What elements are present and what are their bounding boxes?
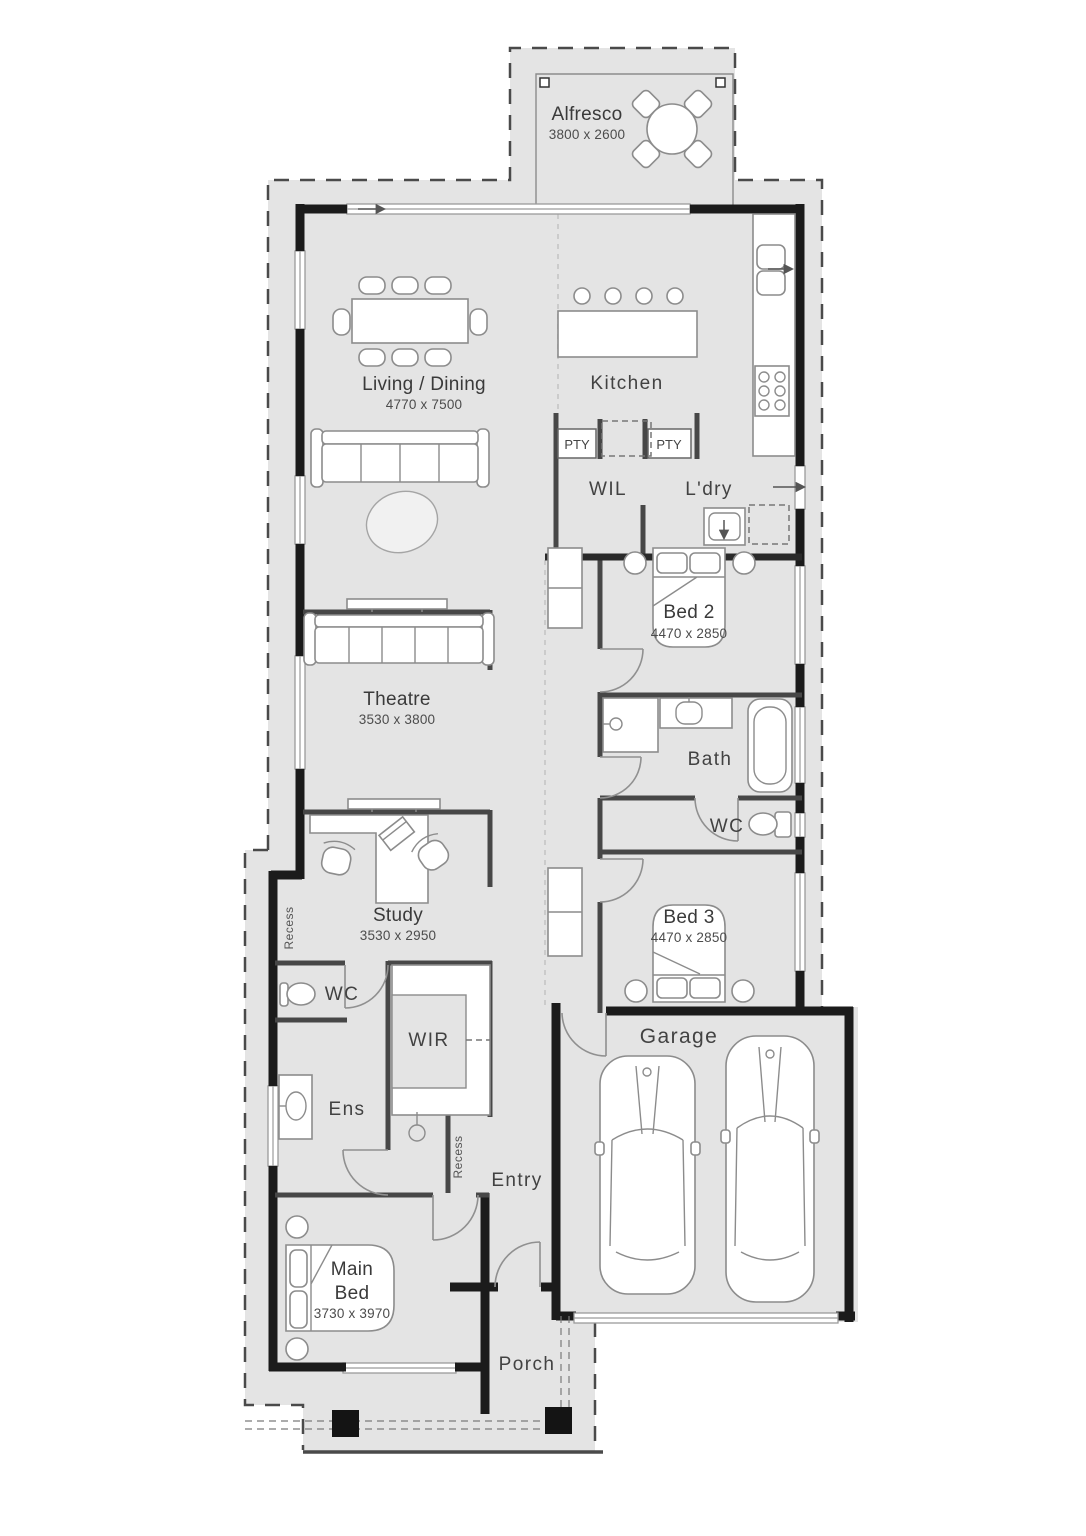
room-label-wil: WIL [589, 479, 627, 500]
room-label-main-bed-2: Bed [335, 1283, 370, 1304]
room-dims-study: 3530 x 2950 [360, 928, 437, 943]
room-label-living-dining: Living / Dining [362, 374, 486, 395]
room-label-kitchen: Kitchen [590, 373, 663, 394]
stool [636, 288, 652, 304]
room-label-bed3: Bed 3 [663, 907, 714, 928]
pillow [290, 1250, 307, 1287]
stool [605, 288, 621, 304]
porch-post [332, 1410, 359, 1437]
car [595, 1056, 700, 1294]
room-label-porch: Porch [499, 1354, 556, 1375]
bedside-table [733, 552, 755, 574]
floor-plan: Alfresco 3800 x 2600 Living / Dining 477… [0, 0, 1086, 1536]
alfresco-post-marker [540, 78, 549, 87]
bedside-table [625, 980, 647, 1002]
floor-plan-page: Alfresco 3800 x 2600 Living / Dining 477… [0, 0, 1086, 1536]
car [721, 1036, 819, 1302]
label-pantry-right: PTY [656, 437, 682, 452]
room-dims-theatre: 3530 x 3800 [359, 712, 436, 727]
pillow [690, 553, 720, 573]
toilet [280, 983, 315, 1006]
label-pantry-left: PTY [564, 437, 590, 452]
pillow [657, 553, 687, 573]
island-bench [558, 311, 697, 357]
room-label-entry: Entry [491, 1170, 542, 1191]
room-label-wc-bath: WC [710, 816, 744, 837]
bedside-table [732, 980, 754, 1002]
shower [603, 698, 658, 752]
room-dims-bed3: 4470 x 2850 [651, 930, 728, 945]
room-label-wc-front: WC [325, 984, 359, 1005]
room-label-main-bed-1: Main [331, 1259, 373, 1280]
stool [574, 288, 590, 304]
bedside-table [624, 552, 646, 574]
pillow [290, 1291, 307, 1328]
alfresco-post-marker [716, 78, 725, 87]
room-label-alfresco: Alfresco [551, 104, 622, 125]
room-label-bed2: Bed 2 [663, 602, 714, 623]
room-label-wir: WIR [408, 1030, 449, 1051]
room-label-laundry: L'dry [685, 479, 733, 500]
stool [667, 288, 683, 304]
room-label-study: Study [373, 905, 423, 926]
bathtub [748, 699, 792, 792]
garage-door [574, 1313, 838, 1323]
room-label-ensuite: Ens [329, 1099, 366, 1120]
porch-post [545, 1407, 572, 1434]
cooktop [755, 366, 789, 416]
toilet [749, 812, 791, 837]
theatre-sofa [304, 613, 494, 665]
room-dims-living-dining: 4770 x 7500 [386, 397, 463, 412]
label-recess-entry: Recess [451, 1135, 465, 1178]
label-recess-side: Recess [282, 906, 296, 949]
room-dims-alfresco: 3800 x 2600 [549, 127, 626, 142]
bedside-table [286, 1338, 308, 1360]
room-label-garage: Garage [640, 1025, 718, 1048]
living-sofa [311, 429, 489, 487]
pillow [657, 978, 687, 998]
room-dims-bed2: 4470 x 2850 [651, 626, 728, 641]
bedside-table [286, 1216, 308, 1238]
room-label-bath: Bath [688, 749, 733, 770]
room-dims-main-bed: 3730 x 3970 [314, 1306, 391, 1321]
room-label-theatre: Theatre [363, 689, 431, 710]
ensuite-vanity [279, 1075, 312, 1139]
pillow [690, 978, 720, 998]
